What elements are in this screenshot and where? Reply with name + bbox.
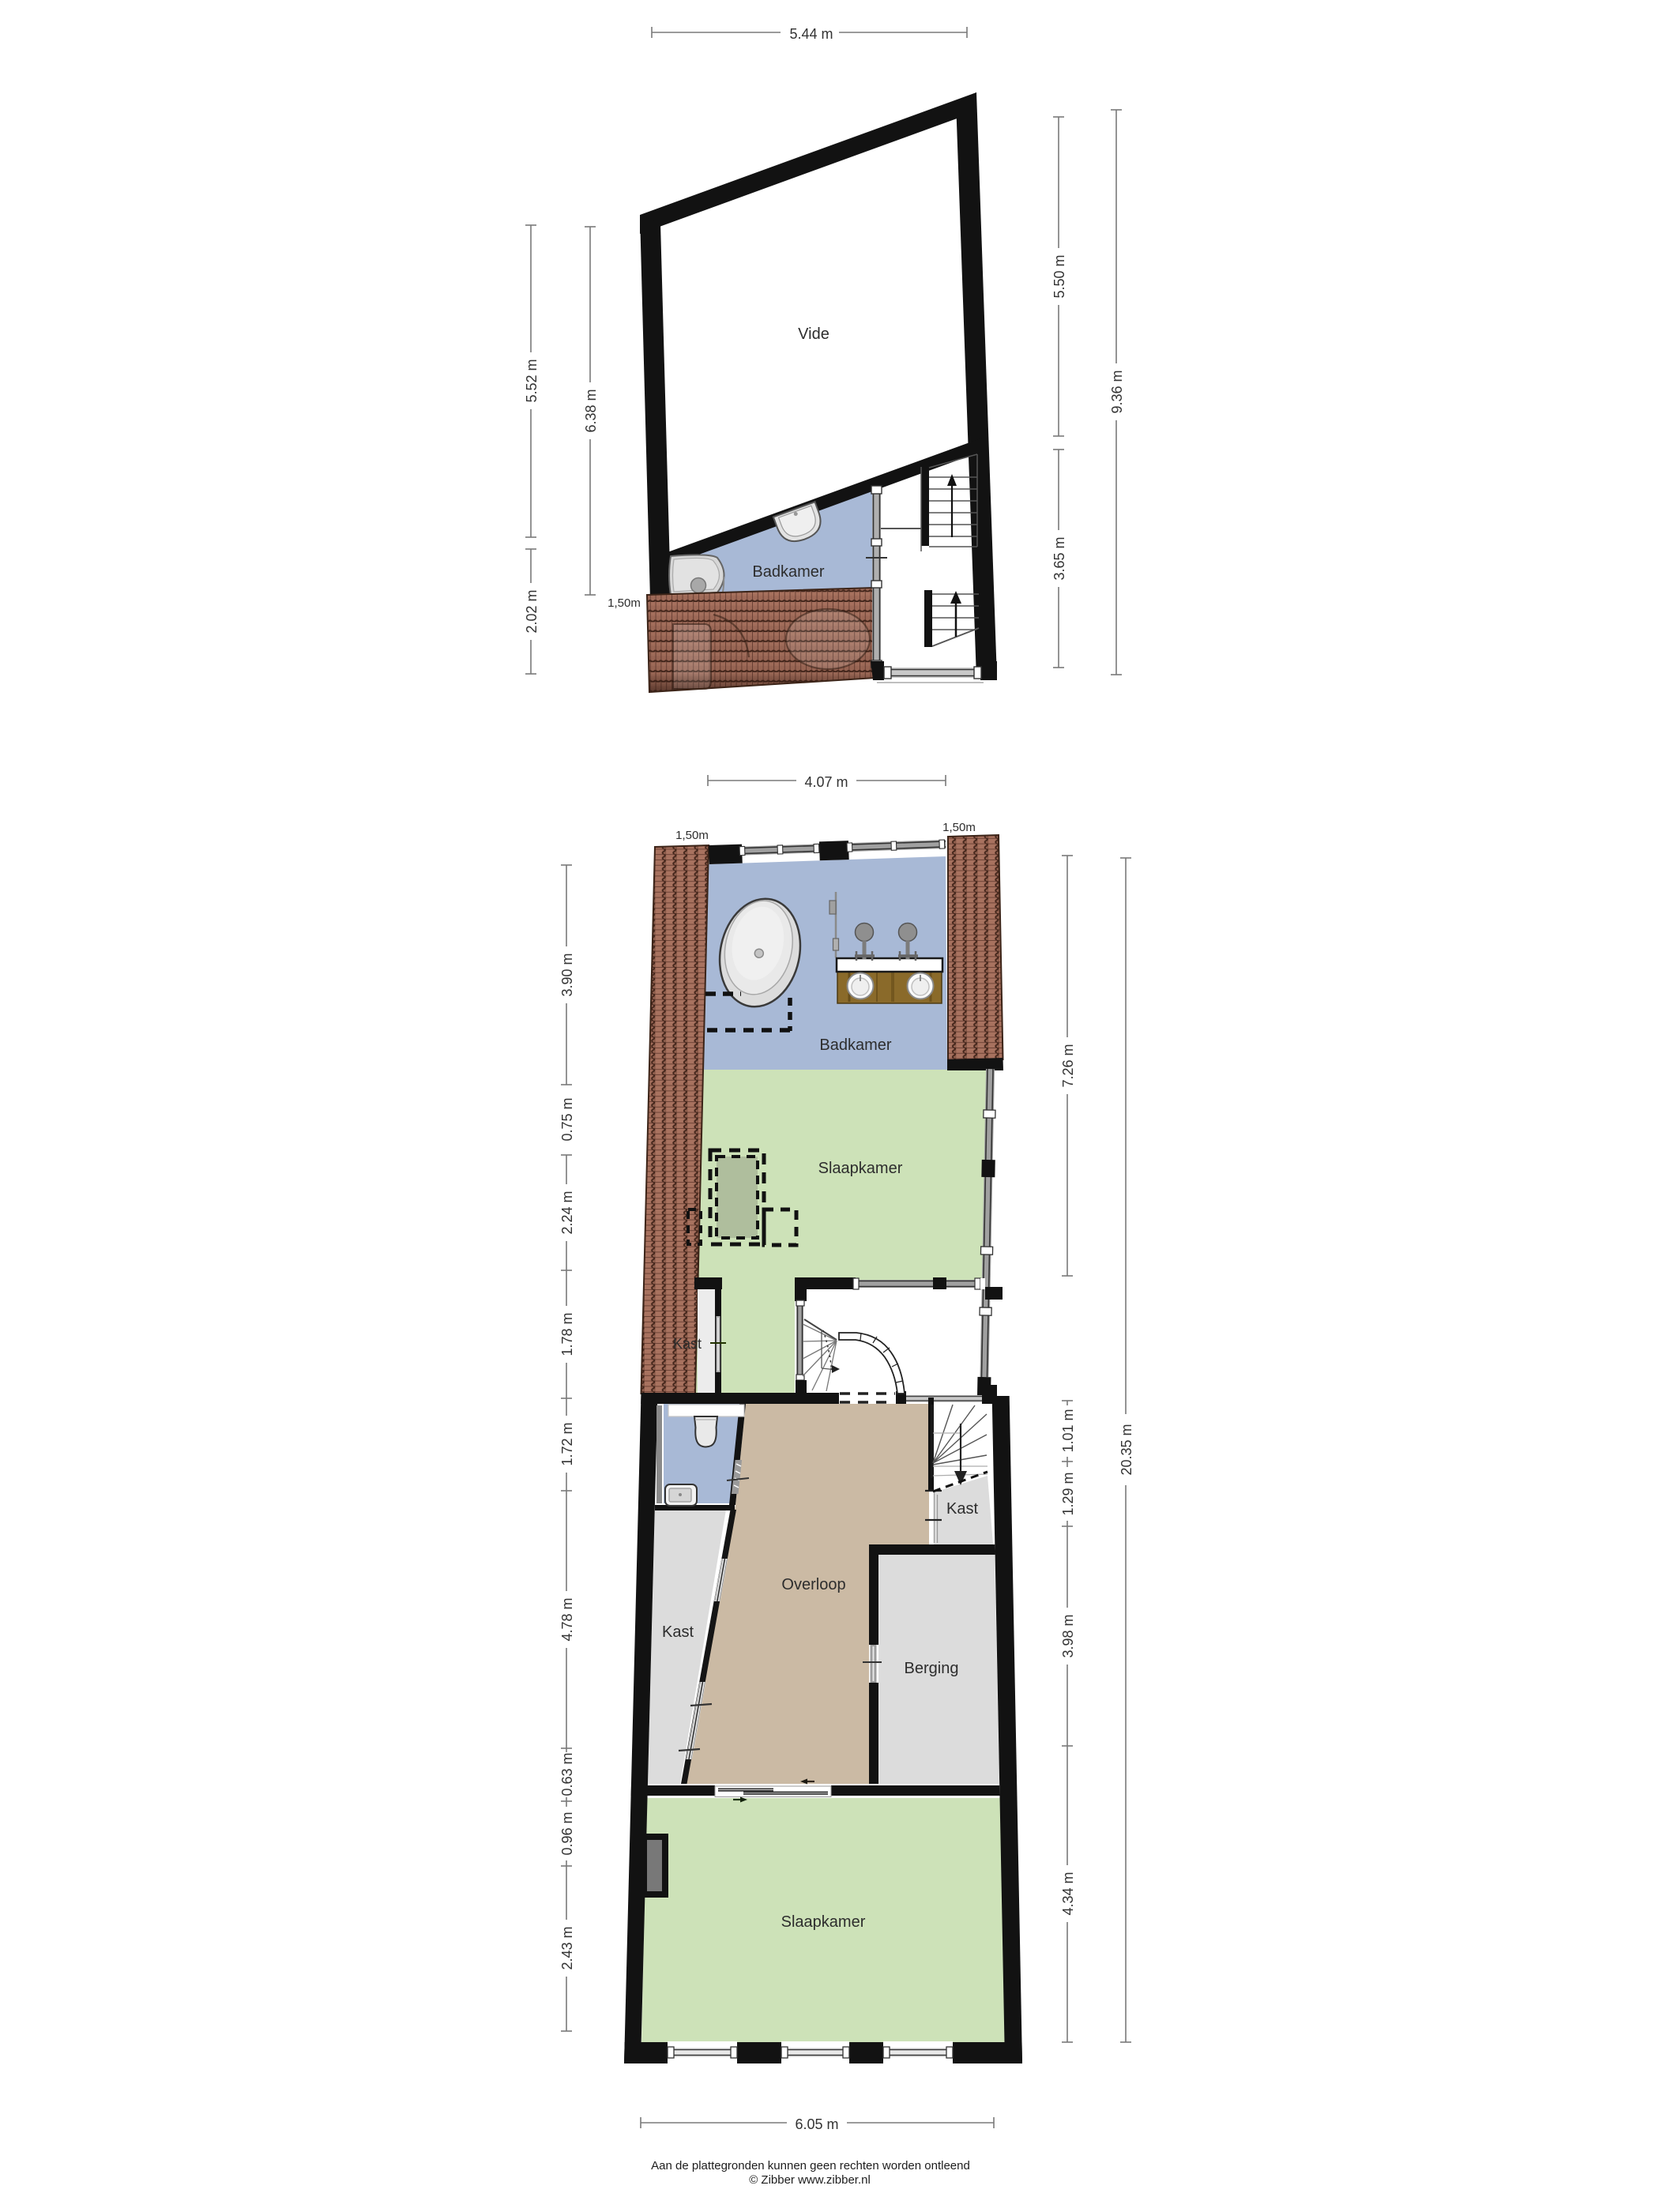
svg-text:2.43 m: 2.43 m (559, 1926, 575, 1969)
svg-text:1,50m: 1,50m (608, 596, 641, 610)
svg-text:1.01 m: 1.01 m (1060, 1409, 1076, 1452)
svg-text:5.52 m: 5.52 m (524, 359, 540, 402)
svg-text:Aan de plattegronden kunnen ge: Aan de plattegronden kunnen geen rechten… (651, 2159, 970, 2172)
svg-text:1,50m: 1,50m (675, 829, 709, 842)
svg-text:Badkamer: Badkamer (819, 1036, 891, 1054)
svg-text:2.24 m: 2.24 m (559, 1191, 575, 1234)
svg-text:1.72 m: 1.72 m (559, 1422, 575, 1465)
svg-text:Badkamer: Badkamer (752, 563, 824, 581)
svg-text:0.63 m: 0.63 m (559, 1752, 575, 1796)
svg-text:1.29 m: 1.29 m (1060, 1472, 1076, 1515)
svg-text:9.36 m: 9.36 m (1109, 370, 1125, 413)
svg-text:4.34 m: 4.34 m (1060, 1872, 1076, 1915)
svg-text:Kast: Kast (673, 1336, 702, 1352)
svg-text:6.05 m: 6.05 m (795, 2116, 838, 2132)
svg-text:Kast: Kast (946, 1500, 978, 1518)
svg-text:20.35 m: 20.35 m (1119, 1424, 1134, 1475)
svg-text:7.26 m: 7.26 m (1060, 1044, 1076, 1087)
svg-text:6.38 m: 6.38 m (583, 389, 599, 432)
svg-text:0.96 m: 0.96 m (559, 1811, 575, 1855)
svg-text:Kast: Kast (662, 1623, 694, 1641)
svg-text:4.07 m: 4.07 m (804, 774, 848, 790)
svg-text:0.75 m: 0.75 m (559, 1097, 575, 1141)
svg-text:Overloop: Overloop (781, 1576, 845, 1593)
svg-text:2.02 m: 2.02 m (524, 589, 540, 633)
svg-text:Slaapkamer: Slaapkamer (818, 1160, 903, 1177)
svg-text:Slaapkamer: Slaapkamer (781, 1913, 866, 1931)
svg-text:4.78 m: 4.78 m (559, 1597, 575, 1641)
svg-text:1,50m: 1,50m (942, 821, 976, 834)
svg-text:1.78 m: 1.78 m (559, 1312, 575, 1356)
svg-text:5.50 m: 5.50 m (1051, 254, 1067, 298)
svg-text:Berging: Berging (905, 1660, 959, 1677)
svg-text:Vide: Vide (798, 325, 829, 343)
svg-text:3.65 m: 3.65 m (1051, 536, 1067, 580)
svg-text:3.90 m: 3.90 m (559, 953, 575, 996)
svg-text:© Zibber www.zibber.nl: © Zibber www.zibber.nl (749, 2173, 871, 2187)
svg-text:5.44 m: 5.44 m (789, 26, 833, 42)
svg-text:3.98 m: 3.98 m (1060, 1614, 1076, 1657)
